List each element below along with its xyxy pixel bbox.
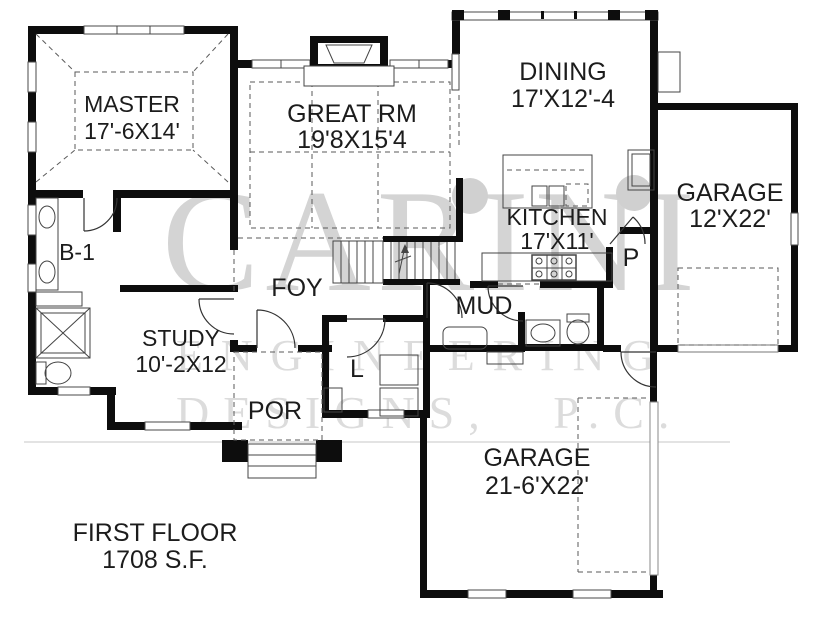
range xyxy=(532,255,576,280)
garage-step xyxy=(487,352,523,364)
label-pantry: P xyxy=(623,244,640,272)
washer xyxy=(380,355,418,385)
dining-bump-out xyxy=(658,52,680,92)
sink xyxy=(531,324,555,342)
label-foyer: FOY xyxy=(271,274,323,302)
label-porch: POR xyxy=(248,397,302,425)
toilet-1 xyxy=(36,362,71,384)
label-kitchen-dims: 17'X11' xyxy=(520,228,594,254)
label-garage-bottom-dims: 21-6'X22' xyxy=(485,472,589,500)
porch-steps xyxy=(248,444,316,478)
linen-shelf xyxy=(36,292,82,306)
label-laundry: L xyxy=(350,355,364,383)
bath1-fixtures xyxy=(36,198,90,384)
dishwasher xyxy=(566,184,588,206)
floor-plan-svg: MASTER 17'-6X14' GREAT RM 19'8X15'4 DINI… xyxy=(0,0,838,622)
label-garage-bottom: GARAGE xyxy=(484,444,591,472)
toilet-2 xyxy=(567,314,589,344)
plan-title-line1: FIRST FLOOR xyxy=(73,519,238,547)
staircase xyxy=(333,241,455,283)
half-bath-fixtures xyxy=(526,314,589,346)
laundry-fixtures xyxy=(324,355,418,416)
label-master-dims: 17'-6X14' xyxy=(84,118,180,144)
label-garage-right: GARAGE xyxy=(677,179,784,207)
plan-title-line2: 1708 S.F. xyxy=(102,546,208,574)
label-great-rm-dims: 19'8X15'4 xyxy=(297,126,407,154)
label-kitchen: KITCHEN xyxy=(507,204,608,230)
label-mud: MUD xyxy=(456,292,513,320)
label-study-dims: 10'-2X12 xyxy=(135,351,226,377)
label-bath1: B-1 xyxy=(59,239,95,265)
label-study: STUDY xyxy=(142,325,220,351)
label-great-rm: GREAT RM xyxy=(287,100,417,128)
label-dining: DINING xyxy=(519,58,607,86)
label-garage-right-dims: 12'X22' xyxy=(689,205,771,233)
fireplace xyxy=(304,36,394,86)
floor-plan-page: CARINI ENGINEERING DESIGNS, P.C. xyxy=(0,0,838,622)
label-master: MASTER xyxy=(84,91,180,117)
label-dining-dims: 17'X12'-4 xyxy=(511,85,615,113)
shower xyxy=(36,308,90,358)
